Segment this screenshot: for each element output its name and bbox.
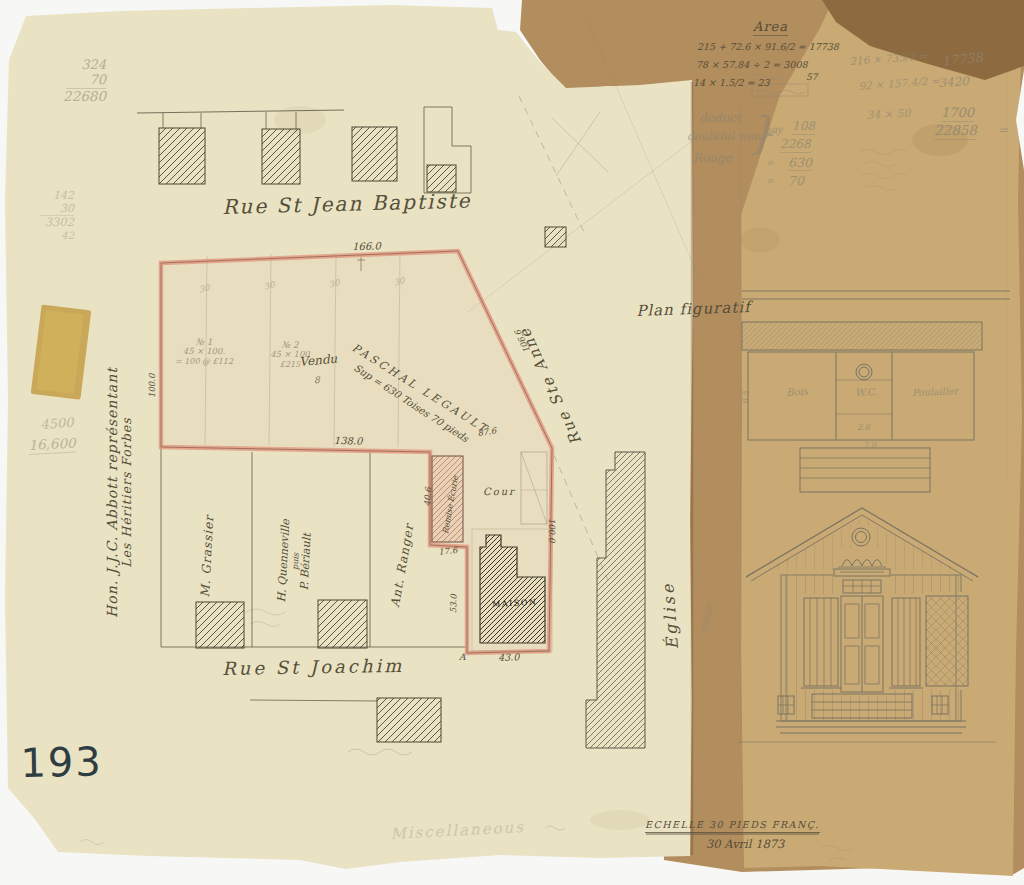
street-label-st-joachim: Rue St Joachim xyxy=(222,656,404,680)
right-calc-total: 22858 xyxy=(934,123,977,140)
dim-house-base: 43.0 xyxy=(498,652,520,664)
area-calc-line2b: 57 xyxy=(806,72,817,82)
area-calc-line1: 215 + 72.6 × 91.6/2 = 17738 xyxy=(697,42,839,53)
cour-label: Cour xyxy=(483,486,516,498)
margin-owner-line2: Les Héritiers Forbes xyxy=(120,367,134,618)
outbuilding-room-bois: Bois xyxy=(786,386,808,399)
pencil-notes-left: 142 30 3302 42 xyxy=(26,190,74,241)
deduct-n2: 2268 xyxy=(780,138,811,153)
pencil-note-n1: 142 xyxy=(53,190,74,203)
lot1-price: = 100 @ £112 xyxy=(168,357,240,366)
deduct-n1: 108 xyxy=(792,120,815,135)
outbuilding-room-poulailler: Poulailler xyxy=(912,386,958,399)
dim-middle: 138.0 xyxy=(334,435,363,447)
area-calc-title: Area xyxy=(753,20,788,36)
dim-stable-side: 40.6 xyxy=(423,487,434,507)
archive-number-stamp: 193 xyxy=(20,739,103,786)
right-calc-res2: 3420 xyxy=(938,75,969,91)
dim-left: 100.0 xyxy=(148,374,158,398)
margin-owner-label: Hon. J.J.C. Abbott représentant Les Héri… xyxy=(104,367,134,618)
dim-house-right: 100.0 xyxy=(546,518,556,542)
dim-top: 166.0 xyxy=(352,241,381,253)
sold-note-number: 8 xyxy=(314,375,320,385)
neighbor-quenneville: H. Quenneville puis P. Bériault xyxy=(276,519,315,604)
lot2-annotation: № 2 45 × 100 £215 xyxy=(254,340,326,369)
right-calc-res3: 1700 xyxy=(941,106,974,122)
deduct-n4: 70 xyxy=(788,174,804,188)
pencil-note-n4: 42 xyxy=(61,230,74,242)
pencil-value-16600: 16,600 xyxy=(28,436,76,455)
dim-stable-base: 17.6 xyxy=(438,546,458,558)
second-sheet xyxy=(741,0,1022,876)
scale-note: ECHELLE 30 PIEDS FRANÇ. xyxy=(645,820,820,833)
pencil-mult-a: 324 xyxy=(81,58,106,73)
lot2-dimensions: 45 × 100 xyxy=(254,350,326,360)
lot1-annotation: № 1 45 × 100. = 100 @ £112 xyxy=(168,337,240,366)
pencil-note-n2: 30 xyxy=(40,203,74,217)
deduct-say: say xyxy=(766,124,783,136)
corner-a-label: A xyxy=(459,652,466,662)
pencil-note-n3: 3302 xyxy=(45,216,74,229)
right-calc-exp3: 34 × 50 xyxy=(866,108,911,123)
survey-plan-scan: Rue St Jean Baptiste Rue St Joachim Rue … xyxy=(0,0,1024,885)
deduct-line1: deduct xyxy=(699,112,741,126)
outbuilding-dim-3: 6.5 xyxy=(741,391,750,404)
right-calc-eq: = xyxy=(998,124,1008,138)
area-calc-line3: 14 × 1.5/2 = 23 xyxy=(693,78,770,89)
dim-house-side: 53.0 xyxy=(449,594,459,613)
pencil-mult-topleft: 324 70 22680 xyxy=(52,58,106,104)
lot1-dimensions: 45 × 100. xyxy=(168,347,240,357)
area-calc-line2: 78 × 57.84 ÷ 2 = 3008 xyxy=(696,60,808,71)
outbuilding-dim-1: 2.6 xyxy=(857,423,870,432)
deduct-eq2: = xyxy=(766,175,774,187)
date-note: 30 Avril 1873 xyxy=(706,838,784,851)
margin-owner-line1: Hon. J.J.C. Abbott représentant xyxy=(104,367,120,618)
lot2-price: £215 xyxy=(254,360,326,369)
deduct-n3: 630 xyxy=(788,156,812,171)
deduct-line3: Rouge xyxy=(693,152,732,166)
pencil-value-4500: 4500 xyxy=(40,416,74,433)
pencil-mult-b: 70 xyxy=(66,73,106,89)
deduct-eq1: = xyxy=(766,157,774,169)
pencil-mult-result: 22680 xyxy=(63,89,106,105)
outbuilding-room-wc: W.C. xyxy=(855,386,878,398)
outbuilding-dim-2: 7.0 xyxy=(863,441,876,450)
